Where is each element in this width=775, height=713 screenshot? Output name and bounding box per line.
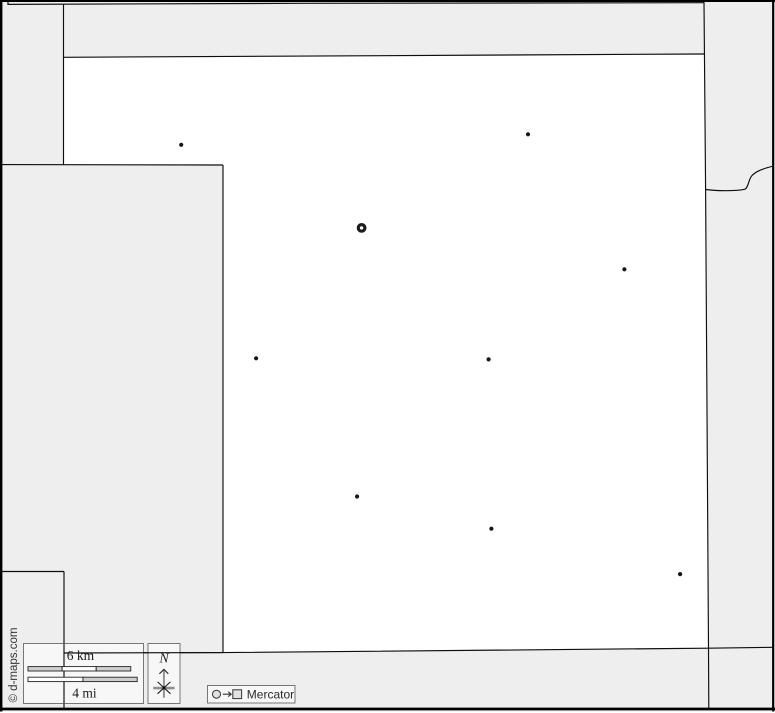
svg-text:Mercator: Mercator [247,688,294,702]
svg-text:4 mi: 4 mi [72,686,97,701]
svg-text:© d-maps.com: © d-maps.com [8,628,20,703]
svg-text:6 km: 6 km [67,648,95,663]
svg-text:N: N [158,652,169,667]
